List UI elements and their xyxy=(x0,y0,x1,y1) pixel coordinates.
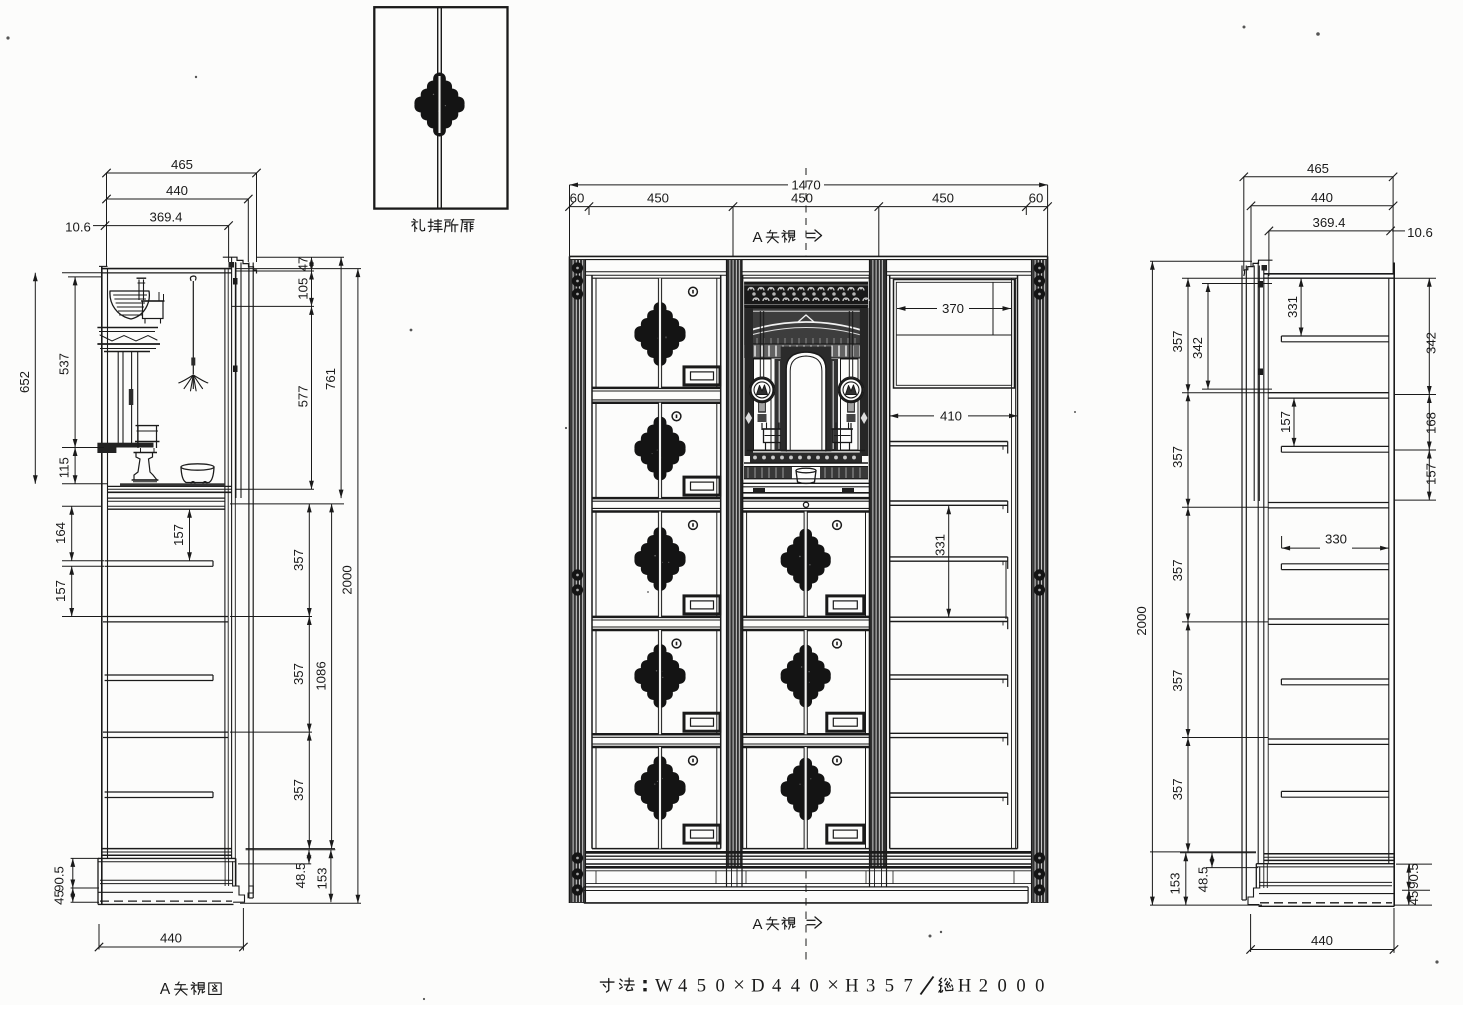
svg-text:A: A xyxy=(752,229,762,246)
svg-text:D: D xyxy=(751,976,764,997)
svg-text:357: 357 xyxy=(291,549,306,571)
svg-text:60: 60 xyxy=(1029,190,1044,205)
svg-text:164: 164 xyxy=(53,522,68,544)
svg-text:115: 115 xyxy=(57,457,72,478)
svg-text:168: 168 xyxy=(1424,412,1439,434)
svg-text:465: 465 xyxy=(171,157,193,172)
svg-text:357: 357 xyxy=(1170,778,1185,800)
svg-text:537: 537 xyxy=(57,353,72,375)
svg-text:157: 157 xyxy=(1424,463,1439,485)
svg-text:5: 5 xyxy=(885,976,894,997)
svg-text:10.6: 10.6 xyxy=(65,220,91,235)
svg-text:577: 577 xyxy=(295,385,310,407)
svg-text:×: × xyxy=(733,973,745,997)
svg-text:×: × xyxy=(827,973,839,997)
svg-text:153: 153 xyxy=(1168,872,1183,894)
svg-text:2000: 2000 xyxy=(1134,606,1149,635)
svg-text:7: 7 xyxy=(904,976,913,997)
svg-text:45: 45 xyxy=(52,890,67,905)
svg-text:90.5: 90.5 xyxy=(52,866,67,892)
svg-text:410: 410 xyxy=(940,408,962,423)
svg-text:330: 330 xyxy=(1325,532,1347,547)
svg-text:0: 0 xyxy=(1016,976,1025,997)
svg-text:440: 440 xyxy=(1311,190,1333,205)
svg-text:4: 4 xyxy=(791,976,800,997)
svg-text:450: 450 xyxy=(932,190,954,205)
svg-text:357: 357 xyxy=(291,779,306,801)
svg-text:440: 440 xyxy=(1311,933,1333,948)
svg-text:48.5: 48.5 xyxy=(293,863,308,889)
svg-text:0: 0 xyxy=(810,976,819,997)
svg-text:157: 157 xyxy=(1278,411,1293,433)
svg-text:331: 331 xyxy=(933,534,948,556)
svg-text:465: 465 xyxy=(1307,161,1329,176)
svg-text:4: 4 xyxy=(678,976,687,997)
svg-text:A: A xyxy=(752,916,762,933)
svg-text:W: W xyxy=(655,976,673,997)
svg-text:0: 0 xyxy=(716,976,725,997)
svg-text:90.5: 90.5 xyxy=(1406,863,1421,889)
svg-text:1086: 1086 xyxy=(313,661,328,690)
svg-text:5: 5 xyxy=(697,976,706,997)
svg-text:357: 357 xyxy=(291,663,306,685)
svg-text:4: 4 xyxy=(772,976,781,997)
svg-text:10.6: 10.6 xyxy=(1407,225,1433,240)
svg-text:357: 357 xyxy=(1170,559,1185,581)
svg-text:761: 761 xyxy=(323,368,338,390)
svg-text:440: 440 xyxy=(160,931,182,946)
svg-text:342: 342 xyxy=(1190,337,1205,359)
svg-text:450: 450 xyxy=(791,190,813,205)
svg-text:357: 357 xyxy=(1170,670,1185,692)
svg-text:47: 47 xyxy=(295,257,310,272)
svg-text:3: 3 xyxy=(866,976,875,997)
svg-text:153: 153 xyxy=(315,867,330,889)
svg-text:0: 0 xyxy=(998,976,1007,997)
svg-text:H: H xyxy=(845,976,858,997)
svg-text:440: 440 xyxy=(166,183,188,198)
svg-text:157: 157 xyxy=(53,580,68,602)
svg-text:45: 45 xyxy=(1406,891,1421,906)
svg-text:H: H xyxy=(958,976,971,997)
svg-text:60: 60 xyxy=(570,190,585,205)
svg-text:2000: 2000 xyxy=(340,565,355,594)
svg-text:A: A xyxy=(160,981,171,998)
svg-text:342: 342 xyxy=(1424,332,1439,354)
svg-text:369.4: 369.4 xyxy=(1312,215,1345,230)
svg-text:357: 357 xyxy=(1170,330,1185,352)
svg-text:369.4: 369.4 xyxy=(149,210,182,225)
svg-text:450: 450 xyxy=(647,190,669,205)
svg-text:370: 370 xyxy=(942,301,964,316)
svg-text:105: 105 xyxy=(295,278,310,300)
svg-text:157: 157 xyxy=(171,524,186,546)
svg-text:48.5: 48.5 xyxy=(1195,867,1210,893)
svg-text:0: 0 xyxy=(1035,976,1044,997)
svg-text:652: 652 xyxy=(17,371,32,393)
svg-text:331: 331 xyxy=(1285,296,1300,318)
svg-text:2: 2 xyxy=(979,976,988,997)
svg-text:357: 357 xyxy=(1170,446,1185,468)
